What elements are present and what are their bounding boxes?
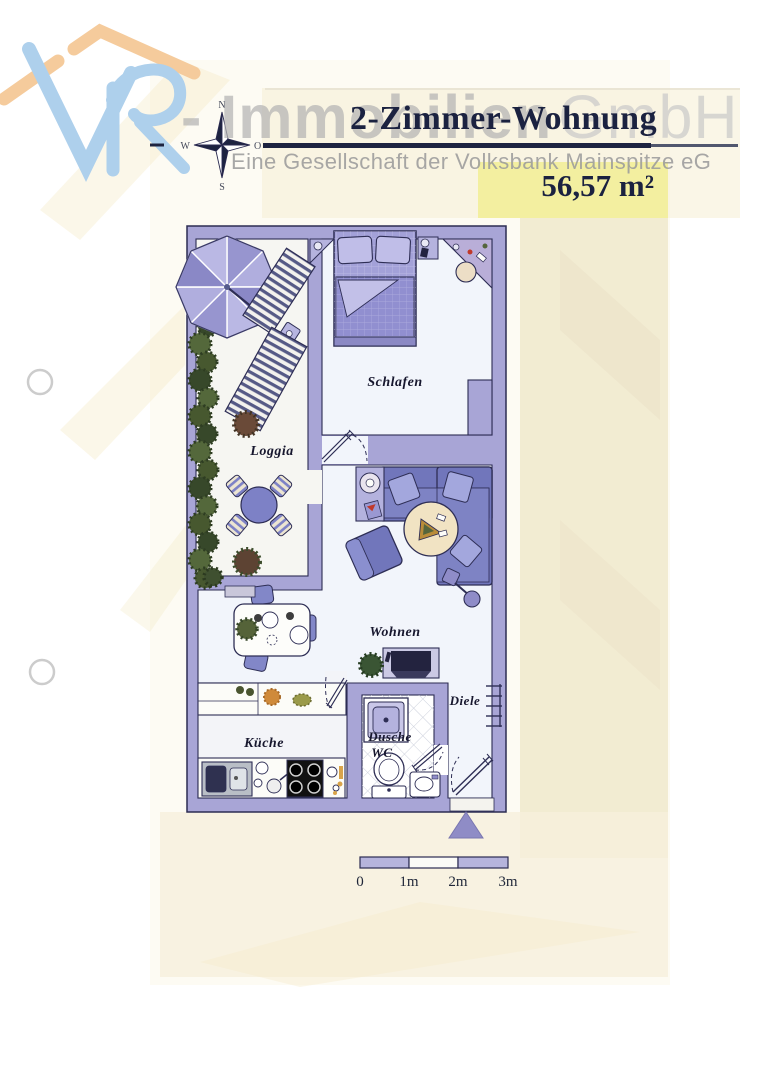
room-label-loggia: Loggia bbox=[249, 444, 293, 459]
room-label-dusche: Dusche bbox=[367, 729, 411, 744]
side-table-icon bbox=[356, 467, 384, 521]
wall-notch bbox=[468, 380, 492, 435]
round-table-icon bbox=[241, 487, 277, 523]
kitchen-counter-icon bbox=[198, 683, 346, 715]
entrance-opening bbox=[450, 798, 494, 811]
punch-hole-icon bbox=[30, 660, 54, 684]
scale-tick-2m: 2m bbox=[448, 874, 468, 890]
room-label-wohnen: Wohnen bbox=[370, 625, 421, 640]
coffee-table-icon bbox=[404, 502, 458, 556]
scanned-floorplan-page: N W O S bbox=[0, 0, 763, 1080]
punch-hole-icon bbox=[28, 370, 52, 394]
sideboard-icon bbox=[225, 586, 255, 597]
door-opening bbox=[325, 671, 347, 684]
title-rule bbox=[263, 143, 651, 148]
room-label-kueche: Küche bbox=[243, 736, 284, 751]
door-opening bbox=[306, 470, 322, 504]
company-subtitle: Eine Gesellschaft der Volksbank Mainspit… bbox=[231, 149, 711, 175]
door-opening bbox=[434, 745, 448, 775]
kitchen-sink-icon bbox=[202, 762, 252, 796]
stove-icon bbox=[287, 760, 323, 797]
room-label-diele: Diele bbox=[449, 693, 481, 708]
kitchen-lower-counter-icon bbox=[198, 758, 345, 798]
scale-tick-1m: 1m bbox=[399, 874, 419, 890]
scale-tick-3m: 3m bbox=[498, 874, 518, 890]
scale-tick-0: 0 bbox=[356, 874, 364, 890]
bed-icon bbox=[334, 231, 416, 346]
floor-plan: Schlafen Loggia Wohnen Küche Dusche WC D… bbox=[176, 226, 506, 812]
bath-sink-icon bbox=[410, 772, 440, 797]
tv-cabinet-icon bbox=[383, 648, 439, 678]
room-label-schlafen: Schlafen bbox=[367, 375, 422, 390]
plant-icon bbox=[237, 619, 257, 639]
page-title: 2-Zimmer-Wohnung bbox=[350, 100, 657, 138]
title-rule-extension bbox=[651, 144, 738, 147]
compass-south-label: S bbox=[219, 182, 225, 193]
plant-icon bbox=[360, 654, 382, 676]
room-label-wc: WC bbox=[371, 745, 392, 760]
